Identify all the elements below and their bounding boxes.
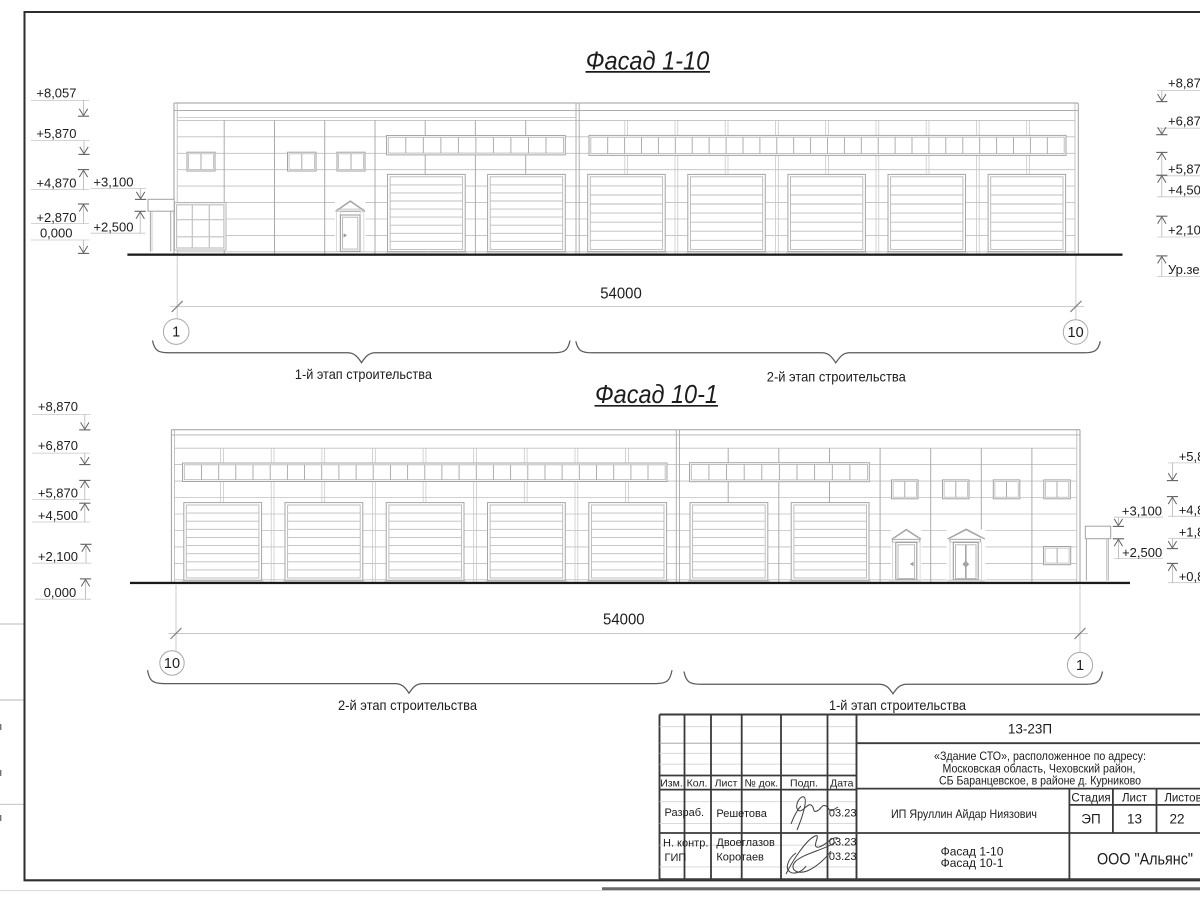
- svg-text:+8,870: +8,870: [1168, 75, 1200, 90]
- svg-text:Кол.: Кол.: [687, 777, 708, 789]
- svg-text:+8,870: +8,870: [38, 399, 78, 414]
- svg-text:+4,870: +4,870: [36, 175, 76, 190]
- svg-text:+8,057: +8,057: [36, 86, 76, 101]
- svg-text:Фасад 1-10: Фасад 1-10: [586, 46, 710, 76]
- svg-text:0,000: 0,000: [44, 585, 77, 600]
- svg-text:Двоеглазов: Двоеглазов: [716, 837, 775, 849]
- svg-text:0,000: 0,000: [40, 226, 73, 241]
- svg-text:Дата: Дата: [830, 777, 853, 789]
- svg-text:ЭП: ЭП: [1081, 812, 1100, 827]
- svg-text:+1,800: +1,800: [1179, 524, 1200, 539]
- svg-text:+2,100: +2,100: [1168, 223, 1200, 238]
- svg-text:+0,800: +0,800: [1179, 569, 1200, 584]
- svg-text:Разраб.: Разраб.: [665, 807, 705, 819]
- svg-text:1-й этап строительства: 1-й этап строительства: [829, 697, 966, 713]
- svg-text:54000: 54000: [600, 285, 642, 302]
- svg-text:Фасад 10-1: Фасад 10-1: [941, 856, 1004, 870]
- svg-text:Ур.земли: Ур.земли: [1168, 262, 1200, 277]
- svg-text:10: 10: [164, 656, 180, 672]
- svg-text:Решетова: Решетова: [716, 808, 767, 820]
- svg-text:ООО "Альянс": ООО "Альянс": [1097, 849, 1193, 868]
- svg-text:+6,870: +6,870: [1168, 114, 1200, 129]
- svg-text:22: 22: [1169, 812, 1184, 827]
- svg-text:ГИП: ГИП: [665, 852, 687, 864]
- svg-text:13-23П: 13-23П: [1008, 722, 1052, 737]
- svg-text:+6,870: +6,870: [38, 438, 78, 453]
- svg-text:03.23: 03.23: [829, 808, 857, 820]
- svg-text:+4,870: +4,870: [1179, 502, 1200, 517]
- svg-text:+2,500: +2,500: [93, 219, 133, 234]
- svg-text:Стадия: Стадия: [1071, 793, 1110, 805]
- svg-text:Фасад 10-1: Фасад 10-1: [595, 379, 718, 409]
- svg-text:+4,500: +4,500: [1168, 183, 1200, 198]
- svg-text:Листов: Листов: [1164, 793, 1200, 805]
- svg-text:Лист: Лист: [1122, 793, 1148, 805]
- svg-text:2-й этап строительства: 2-й этап строительства: [338, 697, 477, 713]
- svg-text:Изм.: Изм.: [660, 777, 683, 789]
- svg-text:Лист: Лист: [715, 777, 738, 789]
- svg-text:№ док.: № док.: [744, 777, 778, 789]
- svg-text:+3,100: +3,100: [93, 174, 133, 189]
- svg-text:1: 1: [1076, 658, 1084, 674]
- svg-text:Н. контр.: Н. контр.: [663, 838, 708, 850]
- svg-text:+5,870: +5,870: [36, 126, 76, 141]
- svg-text:Подп.: Подп.: [790, 777, 818, 789]
- svg-text:+4,500: +4,500: [38, 508, 78, 523]
- svg-text:+2,500: +2,500: [1122, 545, 1162, 560]
- svg-text:СБ Баранцевское, в районе д. К: СБ Баранцевское, в районе д. Курниково: [939, 775, 1141, 788]
- svg-text:1-й этап строительства: 1-й этап строительства: [295, 366, 432, 382]
- svg-text:«Здание СТО», расположенное по: «Здание СТО», расположенное по адресу:: [934, 750, 1146, 763]
- svg-text:13: 13: [1127, 812, 1142, 827]
- svg-text:Коротаев: Коротаев: [716, 852, 764, 864]
- svg-text:+2,100: +2,100: [38, 549, 78, 564]
- svg-text:+3,100: +3,100: [1122, 503, 1162, 518]
- svg-text:ИП Яруллин Айдар Ниязович: ИП Яруллин Айдар Ниязович: [891, 807, 1037, 821]
- svg-text:1: 1: [172, 325, 180, 341]
- svg-text:03.23: 03.23: [829, 851, 857, 863]
- svg-text:54000: 54000: [603, 611, 645, 628]
- svg-text:+5,870: +5,870: [38, 485, 78, 500]
- svg-text:2-й этап строительства: 2-й этап строительства: [767, 369, 906, 385]
- svg-text:+5,870: +5,870: [1179, 449, 1200, 464]
- svg-text:+5,870: +5,870: [1168, 162, 1200, 177]
- svg-text:10: 10: [1068, 325, 1084, 341]
- svg-text:+2,870: +2,870: [36, 210, 76, 225]
- svg-text:Московская область, Чеховский: Московская область, Чеховский район,: [943, 762, 1136, 775]
